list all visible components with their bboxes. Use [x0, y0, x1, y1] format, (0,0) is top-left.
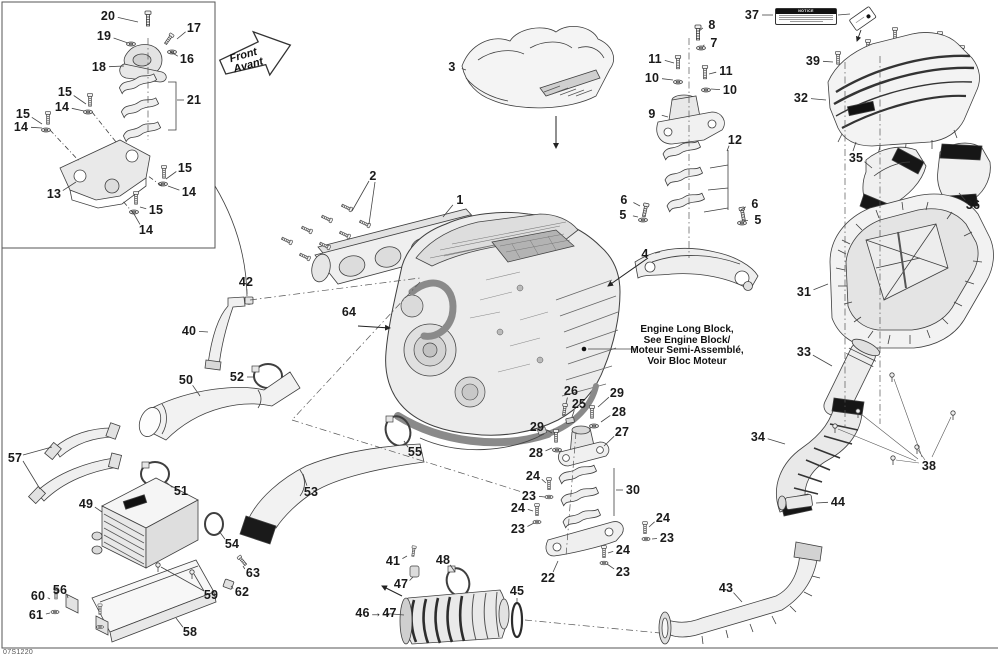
callout-60: 60: [31, 589, 45, 603]
callout-23: 23: [660, 531, 674, 545]
callout-28: 28: [529, 446, 543, 460]
callout-61: 61: [29, 608, 43, 622]
callout-32: 32: [794, 91, 808, 105]
intercooler-hose-lower: [240, 444, 424, 544]
front-direction-arrow: Front Avant: [215, 23, 297, 87]
callout-24: 24: [616, 543, 630, 557]
diagram-art: Front Avant: [0, 0, 1000, 662]
callout-64: 64: [342, 305, 356, 319]
engine-note: Engine Long Block, See Engine Block/ Mot…: [596, 325, 778, 367]
notice-label: NOTICE: [775, 8, 837, 25]
callout-25: 25: [572, 397, 586, 411]
callout-20: 20: [101, 9, 115, 23]
air-intake-silencer-cover: [828, 27, 979, 155]
callout-46-47: 46→47: [355, 606, 396, 620]
callout-30: 30: [626, 483, 640, 497]
callout-23: 23: [511, 522, 525, 536]
callout-31: 31: [797, 285, 811, 299]
callout-63: 63: [246, 566, 260, 580]
callout-4: 4: [641, 247, 648, 261]
air-intake-silencer-base: [830, 194, 993, 348]
engine-support-bracket: [635, 203, 758, 291]
callout-14: 14: [182, 185, 196, 199]
ribbed-outlet-tube: [659, 542, 822, 644]
callout-34: 34: [751, 430, 765, 444]
callout-48: 48: [436, 553, 450, 567]
callout-41: 41: [386, 554, 400, 568]
notice-text-line: [779, 15, 833, 16]
callout-21: 21: [187, 93, 201, 107]
callout-58: 58: [183, 625, 197, 639]
rear-engine-mount: [657, 25, 728, 212]
callout-59: 59: [204, 588, 218, 602]
notice-text-line: [779, 19, 833, 20]
callout-7: 7: [710, 36, 717, 50]
callout-33: 33: [797, 345, 811, 359]
callout-24: 24: [511, 501, 525, 515]
callout-6: 6: [751, 197, 758, 211]
hose-clamp-54: [205, 513, 223, 535]
callout-29: 29: [530, 420, 544, 434]
callout-2: 2: [369, 169, 376, 183]
callout-53: 53: [304, 485, 318, 499]
callout-10: 10: [723, 83, 737, 97]
callout-16: 16: [180, 52, 194, 66]
callout-50: 50: [179, 373, 193, 387]
callout-38: 38: [922, 459, 936, 473]
callout-35: 35: [849, 151, 863, 165]
engine-note-line1: Engine Long Block,: [596, 325, 778, 336]
callout-6: 6: [620, 193, 627, 207]
callout-24: 24: [656, 511, 670, 525]
notice-text-line: [779, 17, 833, 18]
callout-29: 29: [610, 386, 624, 400]
notice-title: NOTICE: [776, 9, 836, 14]
callout-56: 56: [53, 583, 67, 597]
vent-hose: [205, 297, 253, 370]
callout-15: 15: [178, 161, 192, 175]
callout-14: 14: [139, 223, 153, 237]
callout-28: 28: [612, 405, 626, 419]
callout-18: 18: [92, 60, 106, 74]
engine-cover: [462, 26, 614, 107]
callout-10: 10: [645, 71, 659, 85]
intake-corrugated-horn: [400, 546, 522, 644]
callout-5: 5: [619, 208, 626, 222]
callout-5: 5: [754, 213, 761, 227]
callout-44: 44: [831, 495, 845, 509]
callout-22: 22: [541, 571, 555, 585]
callout-37: 37: [745, 8, 759, 22]
callout-15: 15: [16, 107, 30, 121]
callout-62: 62: [235, 585, 249, 599]
callout-27: 27: [615, 425, 629, 439]
engine-long-block: [386, 212, 620, 449]
engine-note-line4: Voir Bloc Moteur: [596, 357, 778, 368]
callout-11: 11: [648, 52, 662, 66]
callout-54: 54: [225, 537, 239, 551]
callout-36: 36: [966, 198, 980, 212]
callout-49: 49: [79, 497, 93, 511]
callout-42: 42: [239, 275, 253, 289]
diagram-code: 07S1220: [3, 649, 33, 656]
callout-14: 14: [55, 100, 69, 114]
intercooler-straps: [29, 423, 122, 504]
intercooler-hose-upper: [135, 372, 300, 440]
o-ring: [512, 603, 522, 637]
callout-9: 9: [648, 107, 655, 121]
parts-diagram-page: Front Avant: [0, 0, 1000, 662]
callout-19: 19: [97, 29, 111, 43]
callout-45: 45: [510, 584, 524, 598]
callout-14: 14: [14, 120, 28, 134]
callout-57: 57: [8, 451, 22, 465]
callout-17: 17: [187, 21, 201, 35]
callout-8: 8: [708, 18, 715, 32]
callout-13: 13: [47, 187, 61, 201]
callout-24: 24: [526, 469, 540, 483]
callout-11: 11: [719, 64, 733, 78]
callout-23: 23: [616, 565, 630, 579]
callout-26: 26: [564, 384, 578, 398]
callout-15: 15: [149, 203, 163, 217]
callout-51: 51: [174, 484, 188, 498]
engine-note-target-dot: [582, 347, 587, 352]
callout-47: 47: [394, 577, 408, 591]
callout-3: 3: [448, 60, 455, 74]
callout-12: 12: [728, 133, 742, 147]
notice-sticker: [838, 6, 876, 41]
callout-39: 39: [806, 54, 820, 68]
notice-text-line: [790, 21, 823, 22]
callout-43: 43: [719, 581, 733, 595]
callout-15: 15: [58, 85, 72, 99]
callout-55: 55: [408, 445, 422, 459]
callout-40: 40: [182, 324, 196, 338]
callout-52: 52: [230, 370, 244, 384]
callout-1: 1: [456, 193, 463, 207]
